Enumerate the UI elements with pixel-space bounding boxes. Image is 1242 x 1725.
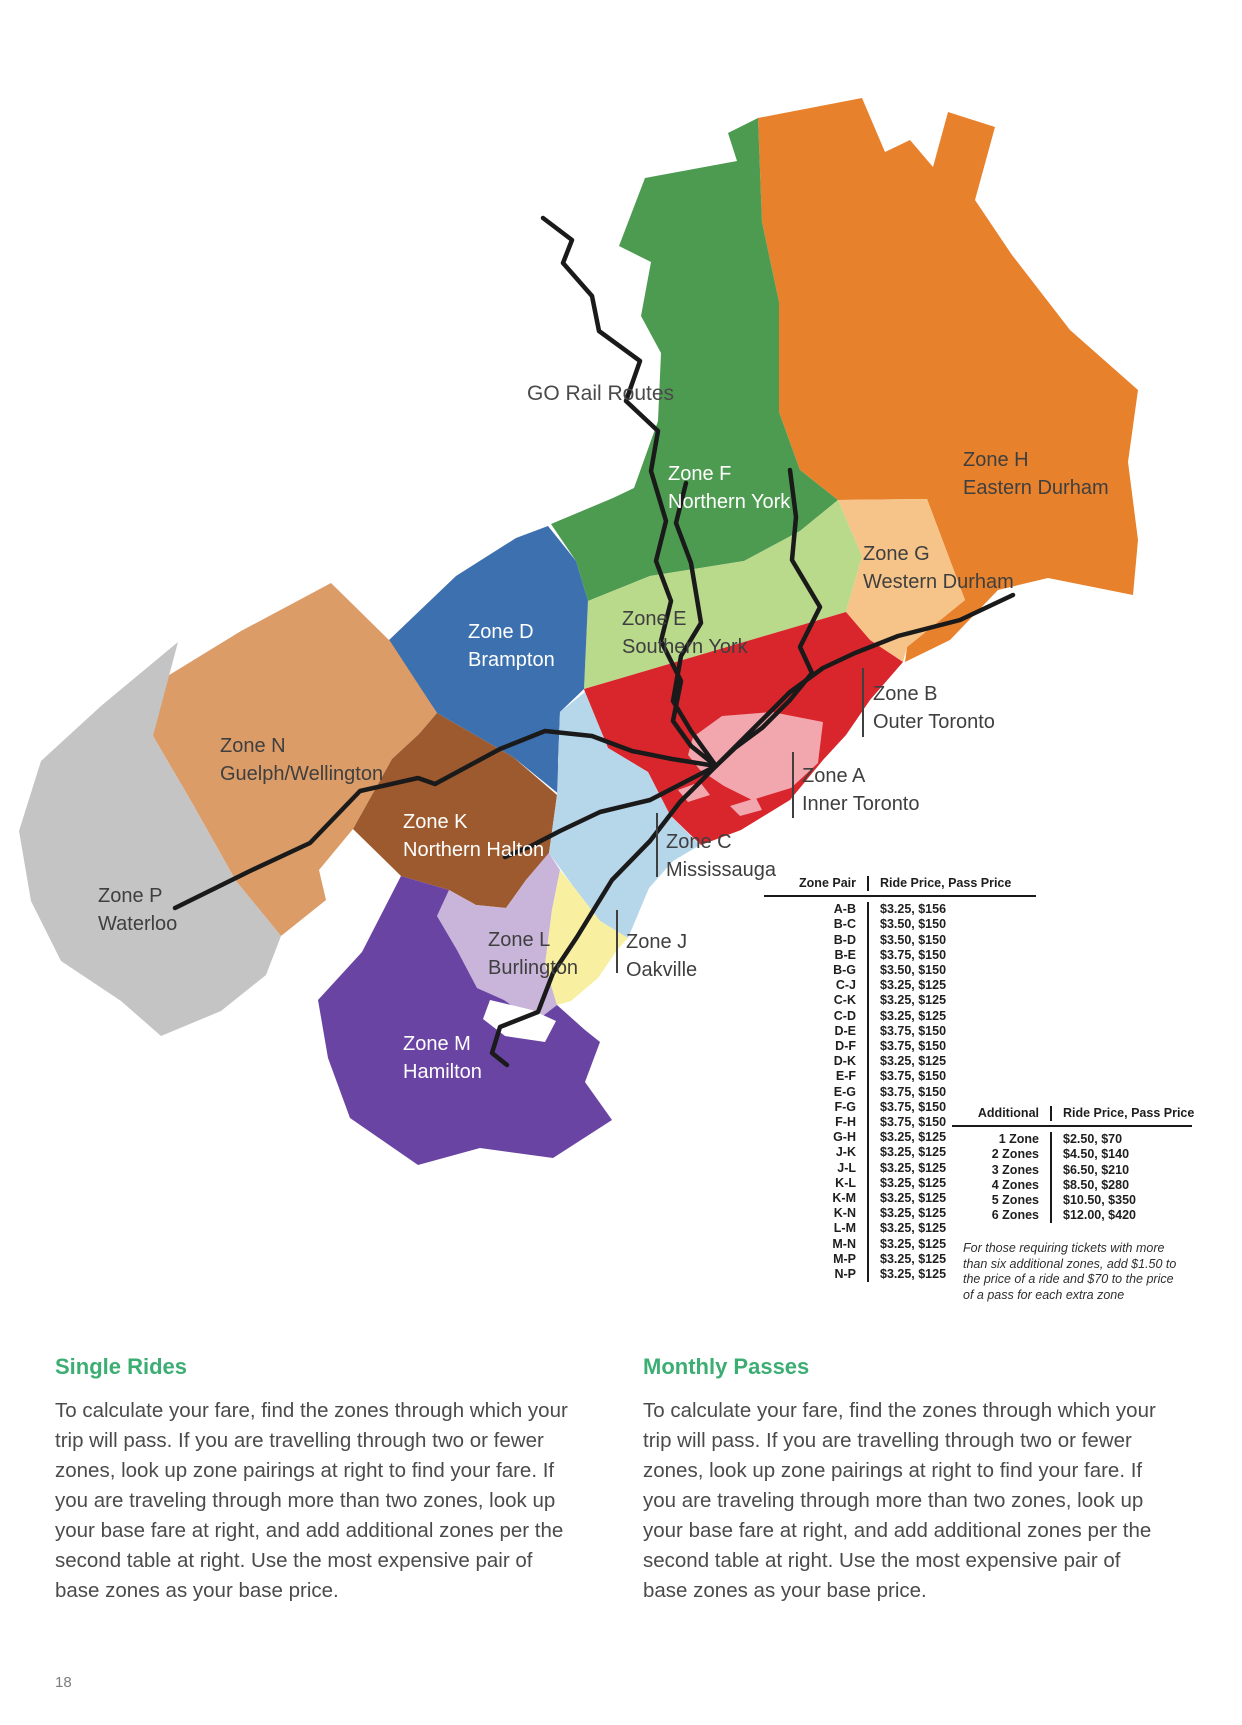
zone-pair-cell: D-K (764, 1054, 867, 1069)
zone-pair-cell: L-M (764, 1221, 867, 1236)
table-header-row: Zone Pair Ride Price, Pass Price (764, 876, 1036, 891)
zone-pair-cell: B-E (764, 948, 867, 963)
table-row: D-K $3.25, $125 (764, 1054, 1036, 1069)
zone-l-label: Zone LBurlington (488, 926, 578, 982)
zone-count-cell: 4 Zones (952, 1178, 1050, 1193)
zone-count-cell: 5 Zones (952, 1193, 1050, 1208)
price-cell: $3.75, $150 (867, 1115, 946, 1130)
zone-pair-cell: K-L (764, 1176, 867, 1191)
price-cell: $3.25, $156 (867, 902, 946, 917)
table-rule (952, 1125, 1192, 1127)
additional-rows: 1 Zone $2.50, $70 2 Zones $4.50, $140 3 … (952, 1132, 1194, 1223)
price-cell: $3.25, $125 (867, 978, 946, 993)
price-cell: $3.25, $125 (867, 1237, 946, 1252)
zone-pair-cell: D-F (764, 1039, 867, 1054)
price-cell: $10.50, $350 (1050, 1193, 1136, 1208)
zone-pair-cell: C-D (764, 1009, 867, 1024)
monthly-passes-section: Monthly Passes To calculate your fare, f… (643, 1354, 1158, 1606)
table-row: 5 Zones $10.50, $350 (952, 1193, 1194, 1208)
price-cell: $3.75, $150 (867, 1100, 946, 1115)
zone-pair-cell: B-D (764, 933, 867, 948)
zone-f-label: Zone FNorthern York (668, 460, 790, 516)
zone-pair-cell: F-H (764, 1115, 867, 1130)
price-cell: $3.25, $125 (867, 1221, 946, 1236)
table-row: C-J $3.25, $125 (764, 978, 1036, 993)
zone-count-cell: 6 Zones (952, 1208, 1050, 1223)
zone-pair-cell: E-G (764, 1085, 867, 1100)
zone-count-cell: 3 Zones (952, 1163, 1050, 1178)
price-cell: $3.25, $125 (867, 1206, 946, 1221)
extra-zone-footnote: For those requiring tickets with more th… (963, 1241, 1185, 1304)
table-row: B-C $3.50, $150 (764, 917, 1036, 932)
table-row: 4 Zones $8.50, $280 (952, 1178, 1194, 1193)
zone-j-label: Zone JOakville (626, 928, 697, 984)
price-cell: $3.25, $125 (867, 993, 946, 1008)
table-row: B-D $3.50, $150 (764, 933, 1036, 948)
zone-n-label: Zone NGuelph/Wellington (220, 732, 383, 788)
page-number: 18 (55, 1674, 72, 1691)
zone-pair-cell: F-G (764, 1100, 867, 1115)
price-cell: $3.25, $125 (867, 1161, 946, 1176)
table-row: C-K $3.25, $125 (764, 993, 1036, 1008)
price-cell: $3.25, $125 (867, 1252, 946, 1267)
zone-pair-cell: A-B (764, 902, 867, 917)
zone-count-cell: 2 Zones (952, 1147, 1050, 1162)
price-cell: $12.00, $420 (1050, 1208, 1136, 1223)
zone-pair-cell: K-N (764, 1206, 867, 1221)
zone-pair-cell: D-E (764, 1024, 867, 1039)
table-row: 1 Zone $2.50, $70 (952, 1132, 1194, 1147)
zone-g-label: Zone GWestern Durham (863, 540, 1014, 596)
price-cell: $3.75, $150 (867, 1024, 946, 1039)
zone-c-label: Zone CMississauga (666, 828, 776, 884)
zone-pair-cell: B-C (764, 917, 867, 932)
price-cell: $3.25, $125 (867, 1054, 946, 1069)
fare-guide-page: GO Rail Routes Zone FNorthern York Zone … (0, 0, 1242, 1725)
price-cell: $3.75, $150 (867, 1069, 946, 1084)
price-cell: $3.25, $125 (867, 1176, 946, 1191)
monthly-passes-body: To calculate your fare, find the zones t… (643, 1396, 1158, 1606)
zone-pair-cell: B-G (764, 963, 867, 978)
col-header-zone-pair: Zone Pair (764, 876, 867, 891)
single-rides-body: To calculate your fare, find the zones t… (55, 1396, 570, 1606)
zone-pair-cell: M-N (764, 1237, 867, 1252)
zone-pair-cell: N-P (764, 1267, 867, 1282)
zone-p-label: Zone PWaterloo (98, 882, 177, 938)
zone-b-label: Zone BOuter Toronto (873, 680, 995, 736)
zone-m-label: Zone MHamilton (403, 1030, 482, 1086)
zone-h-label: Zone HEastern Durham (963, 446, 1109, 502)
zone-pair-cell: K-M (764, 1191, 867, 1206)
single-rides-section: Single Rides To calculate your fare, fin… (55, 1354, 570, 1606)
price-cell: $3.25, $125 (867, 1191, 946, 1206)
zone-count-cell: 1 Zone (952, 1132, 1050, 1147)
zone-pair-cell: M-P (764, 1252, 867, 1267)
col-header-ride-pass-price: Ride Price, Pass Price (867, 876, 1011, 891)
table-row: L-M $3.25, $125 (764, 1221, 1036, 1236)
price-cell: $3.25, $125 (867, 1009, 946, 1024)
price-cell: $3.50, $150 (867, 933, 946, 948)
price-cell: $3.75, $150 (867, 1039, 946, 1054)
additional-zones-table: Additional Ride Price, Pass Price 1 Zone… (952, 1106, 1194, 1223)
price-cell: $3.25, $125 (867, 1267, 946, 1282)
price-cell: $3.75, $150 (867, 1085, 946, 1100)
table-row: 2 Zones $4.50, $140 (952, 1147, 1194, 1162)
table-header-row: Additional Ride Price, Pass Price (952, 1106, 1194, 1121)
price-cell: $3.50, $150 (867, 917, 946, 932)
zone-pair-cell: E-F (764, 1069, 867, 1084)
table-row: 3 Zones $6.50, $210 (952, 1163, 1194, 1178)
zone-pair-cell: G-H (764, 1130, 867, 1145)
price-cell: $8.50, $280 (1050, 1178, 1129, 1193)
zone-e-label: Zone ESouthern York (622, 605, 748, 661)
price-cell: $3.50, $150 (867, 963, 946, 978)
col-header-ride-pass-price: Ride Price, Pass Price (1050, 1106, 1194, 1121)
monthly-passes-heading: Monthly Passes (643, 1354, 1158, 1380)
table-row: A-B $3.25, $156 (764, 902, 1036, 917)
table-row: D-F $3.75, $150 (764, 1039, 1036, 1054)
price-cell: $3.25, $125 (867, 1145, 946, 1160)
table-row: 6 Zones $12.00, $420 (952, 1208, 1194, 1223)
zone-k-label: Zone KNorthern Halton (403, 808, 544, 864)
price-cell: $3.75, $150 (867, 948, 946, 963)
single-rides-heading: Single Rides (55, 1354, 570, 1380)
zone-pair-cell: J-L (764, 1161, 867, 1176)
zone-a-label: Zone AInner Toronto (802, 762, 920, 818)
price-cell: $6.50, $210 (1050, 1163, 1129, 1178)
table-row: D-E $3.75, $150 (764, 1024, 1036, 1039)
price-cell: $3.25, $125 (867, 1130, 946, 1145)
price-cell: $2.50, $70 (1050, 1132, 1122, 1147)
col-header-additional: Additional (952, 1106, 1050, 1121)
zone-pair-rows: A-B $3.25, $156 B-C $3.50, $150 B-D $3.5… (764, 902, 1036, 1282)
table-row: B-G $3.50, $150 (764, 963, 1036, 978)
table-row: E-F $3.75, $150 (764, 1069, 1036, 1084)
table-rule (764, 895, 1036, 897)
zone-pair-cell: C-J (764, 978, 867, 993)
table-row: B-E $3.75, $150 (764, 948, 1036, 963)
zone-d-label: Zone DBrampton (468, 618, 555, 674)
price-cell: $4.50, $140 (1050, 1147, 1129, 1162)
zone-pair-cell: C-K (764, 993, 867, 1008)
zone-pair-cell: J-K (764, 1145, 867, 1160)
go-rail-routes-label: GO Rail Routes (527, 382, 674, 406)
table-row: E-G $3.75, $150 (764, 1085, 1036, 1100)
table-row: C-D $3.25, $125 (764, 1009, 1036, 1024)
